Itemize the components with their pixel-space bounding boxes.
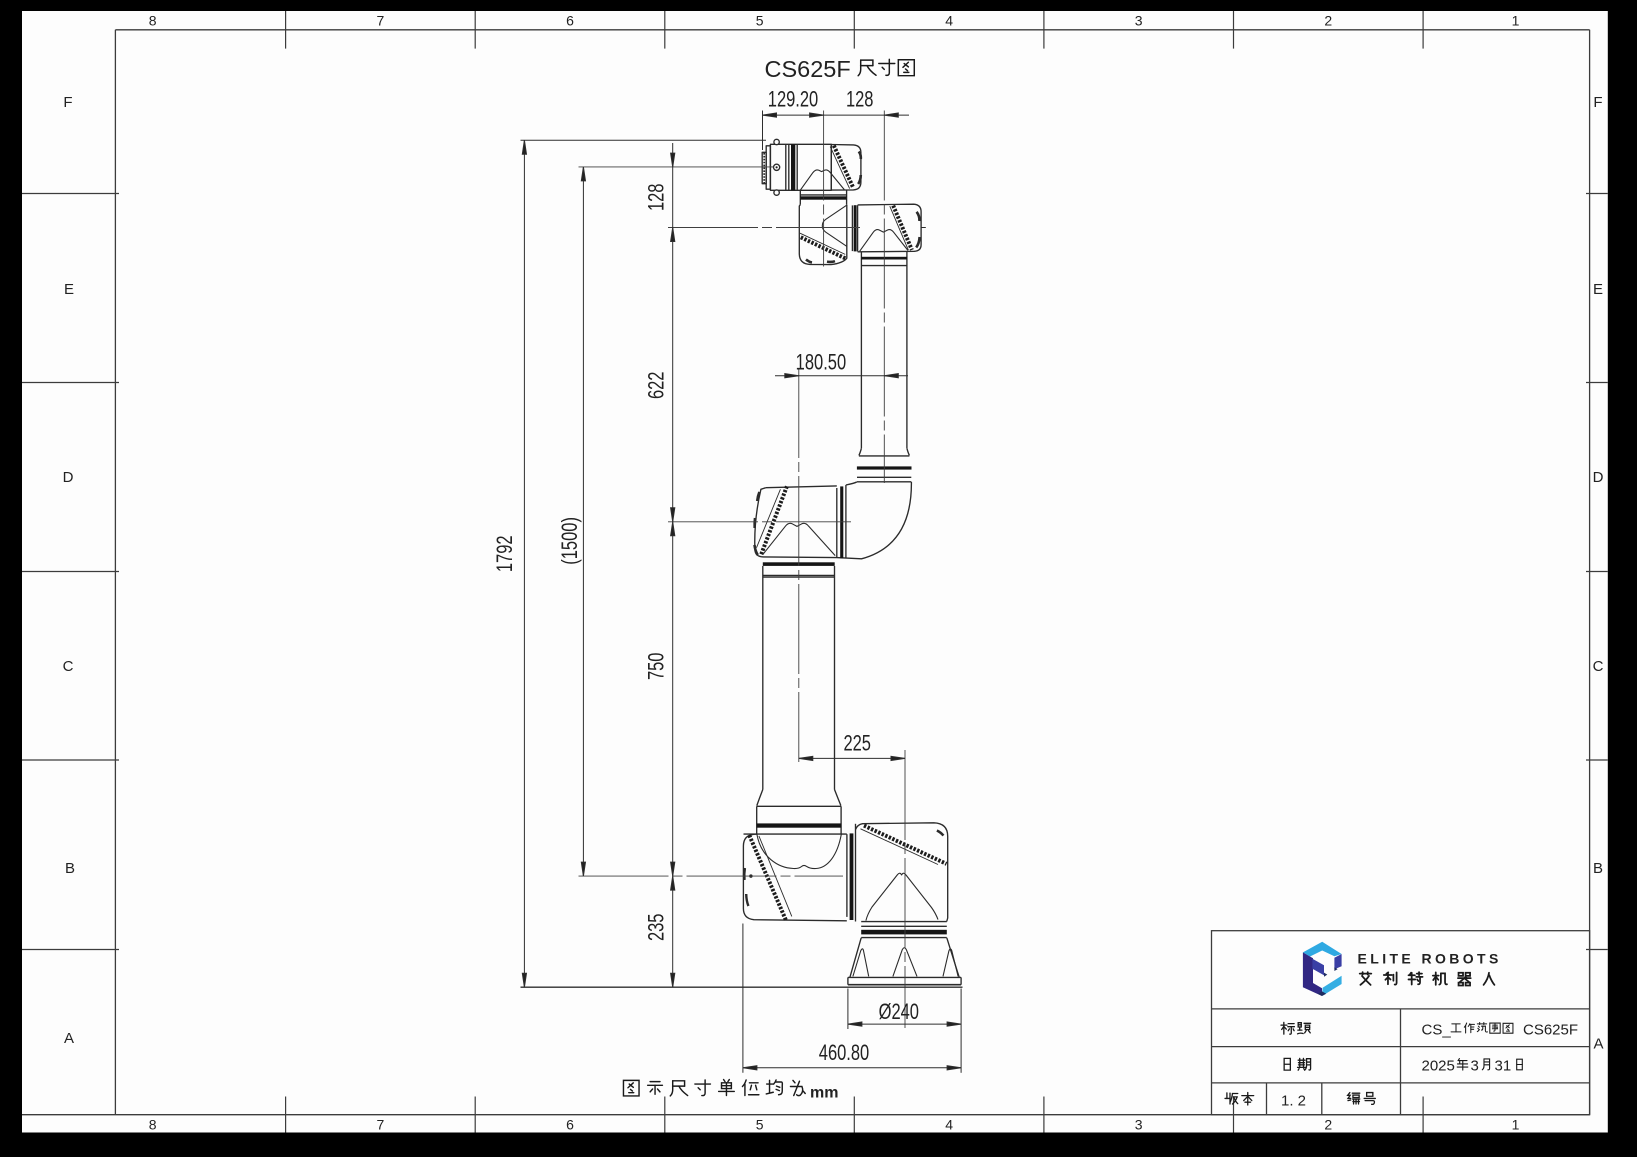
svg-text:1792: 1792 xyxy=(493,535,518,572)
svg-text:1: 1 xyxy=(1512,1117,1520,1133)
svg-text:460.80: 460.80 xyxy=(819,1041,870,1066)
svg-text:622: 622 xyxy=(644,372,669,400)
svg-text:2: 2 xyxy=(1324,13,1332,29)
svg-text:7: 7 xyxy=(377,1117,385,1133)
svg-text:CS625F: CS625F xyxy=(765,56,851,82)
svg-text:C: C xyxy=(1593,658,1604,675)
svg-text:128: 128 xyxy=(644,184,669,212)
svg-text:31: 31 xyxy=(1495,1058,1512,1075)
svg-text:A: A xyxy=(1593,1036,1603,1053)
svg-text:180.50: 180.50 xyxy=(796,350,847,375)
svg-text:1: 1 xyxy=(1512,13,1520,29)
svg-text:ELITE ROBOTS: ELITE ROBOTS xyxy=(1358,951,1502,967)
svg-text:C: C xyxy=(63,658,74,675)
svg-text:E: E xyxy=(1593,281,1603,298)
svg-text:2025: 2025 xyxy=(1422,1058,1455,1075)
svg-text:6: 6 xyxy=(566,13,574,29)
svg-text:128: 128 xyxy=(846,87,874,112)
svg-text:8: 8 xyxy=(149,13,157,29)
svg-text:235: 235 xyxy=(644,914,669,942)
svg-text:CS_: CS_ xyxy=(1422,1022,1452,1039)
svg-text:7: 7 xyxy=(377,13,385,29)
svg-text:mm: mm xyxy=(810,1085,838,1102)
svg-text:Ø240: Ø240 xyxy=(879,1000,920,1025)
svg-text:3: 3 xyxy=(1135,13,1143,29)
svg-text:225: 225 xyxy=(843,731,871,756)
svg-text:CS625F: CS625F xyxy=(1523,1022,1578,1039)
svg-text:E: E xyxy=(64,281,74,298)
svg-text:129.20: 129.20 xyxy=(768,87,819,112)
svg-text:A: A xyxy=(64,1030,74,1047)
svg-text:4: 4 xyxy=(945,1117,953,1133)
svg-text:6: 6 xyxy=(566,1117,574,1133)
svg-text:(1500): (1500) xyxy=(558,517,583,565)
svg-text:5: 5 xyxy=(756,1117,764,1133)
svg-text:3: 3 xyxy=(1135,1117,1143,1133)
svg-text:4: 4 xyxy=(945,13,953,29)
svg-text:8: 8 xyxy=(149,1117,157,1133)
svg-text:3: 3 xyxy=(1471,1058,1479,1075)
svg-text:2: 2 xyxy=(1324,1117,1332,1133)
svg-text:F: F xyxy=(1593,94,1602,111)
svg-text:5: 5 xyxy=(756,13,764,29)
svg-text:1. 2: 1. 2 xyxy=(1281,1093,1306,1110)
svg-text:750: 750 xyxy=(644,652,669,680)
svg-text:B: B xyxy=(1593,860,1603,877)
svg-text:D: D xyxy=(63,469,74,486)
svg-text:D: D xyxy=(1593,469,1604,486)
svg-text:F: F xyxy=(63,94,72,111)
svg-text:B: B xyxy=(65,860,75,877)
